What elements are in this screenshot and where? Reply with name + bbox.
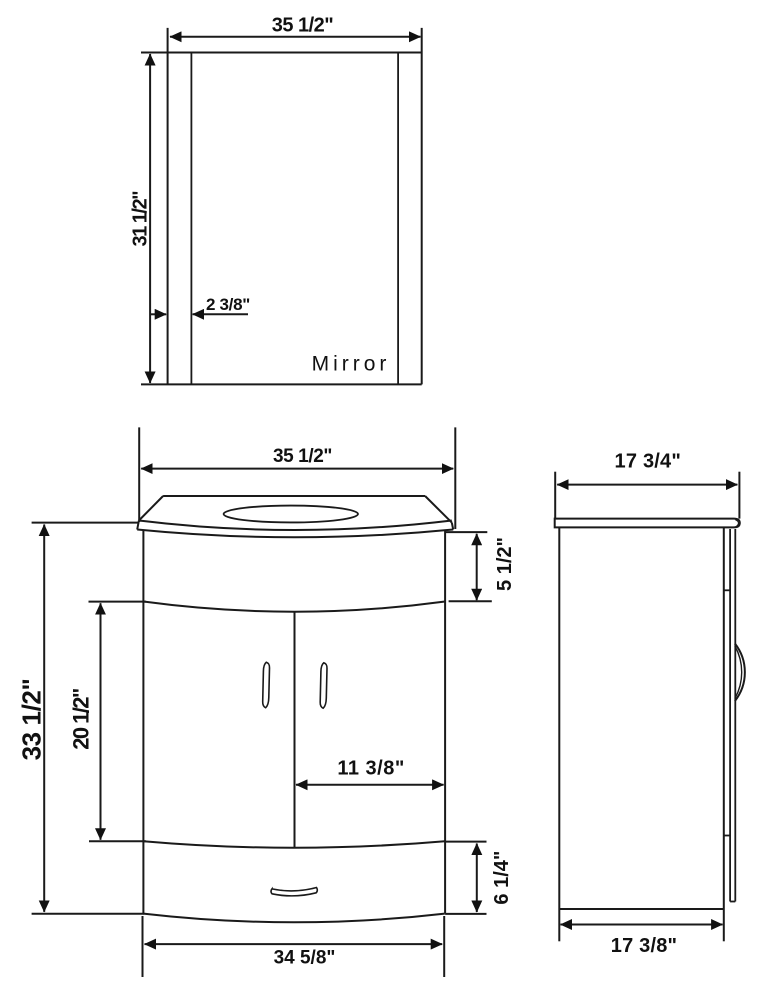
svg-text:34 5/8": 34 5/8": [274, 948, 336, 969]
svg-text:17 3/8": 17 3/8": [611, 935, 678, 957]
svg-text:35 1/2": 35 1/2": [273, 446, 332, 467]
svg-text:33 1/2": 33 1/2": [17, 679, 47, 761]
svg-text:Mirror: Mirror: [312, 353, 391, 376]
svg-text:11 3/8": 11 3/8": [337, 757, 404, 779]
svg-text:6 1/4": 6 1/4": [491, 851, 513, 905]
svg-text:20 1/2": 20 1/2": [69, 689, 94, 750]
svg-text:31 1/2": 31 1/2": [129, 191, 151, 247]
svg-text:5 1/2": 5 1/2": [494, 537, 516, 591]
svg-text:2 3/8": 2 3/8": [206, 295, 250, 314]
svg-text:17 3/4": 17 3/4": [615, 451, 682, 473]
svg-text:35 1/2": 35 1/2": [272, 14, 334, 36]
